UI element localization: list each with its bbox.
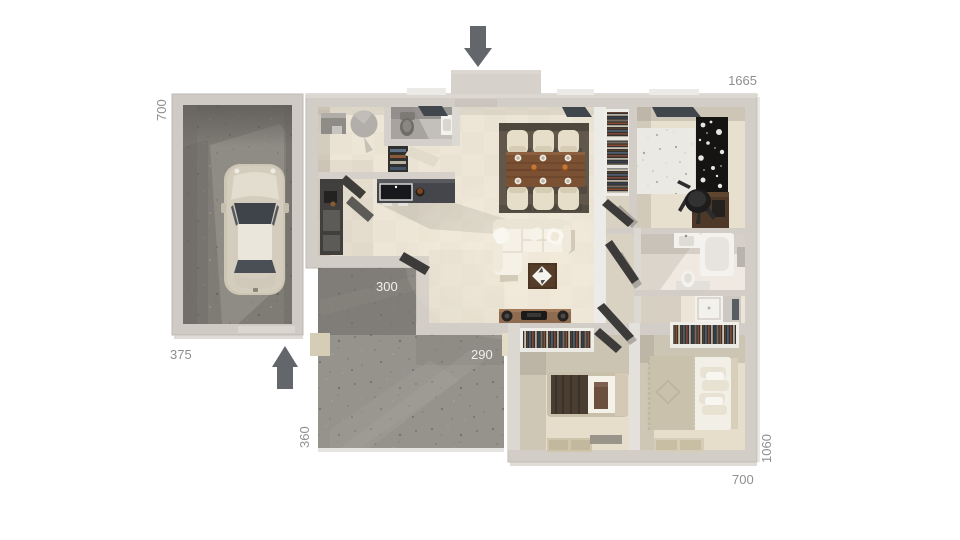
svg-text:360: 360 [297, 426, 312, 448]
svg-text:300: 300 [376, 279, 398, 294]
svg-text:700: 700 [154, 99, 169, 121]
svg-text:700: 700 [732, 472, 754, 487]
svg-text:290: 290 [471, 347, 493, 362]
svg-text:1060: 1060 [759, 434, 774, 463]
svg-text:375: 375 [170, 347, 192, 362]
svg-text:1665: 1665 [728, 73, 757, 88]
